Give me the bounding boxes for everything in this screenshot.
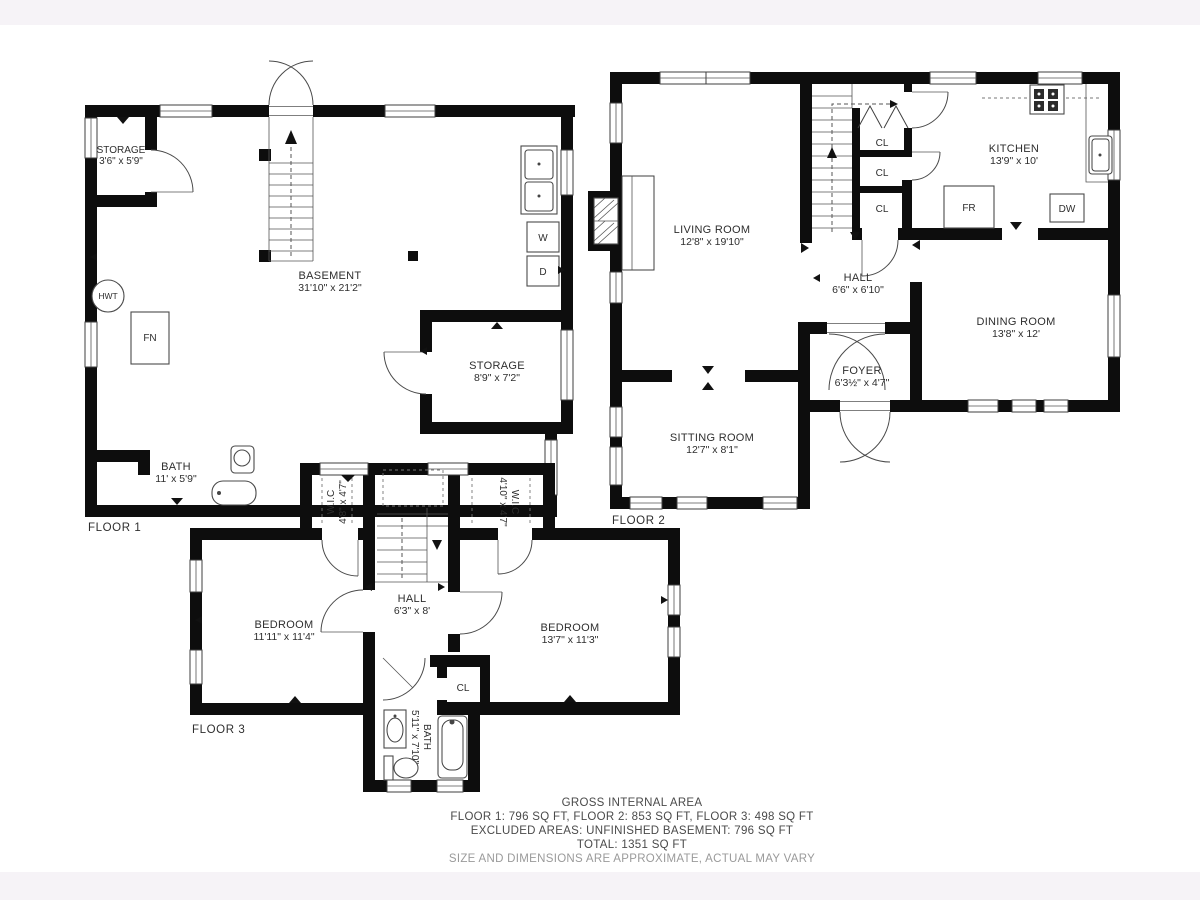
room-dims: 13'9" x 10' [990,155,1038,167]
room-dims: 13'8" x 12' [992,328,1040,340]
fixture-label: W [538,233,548,244]
room-label: DINING ROOM [976,316,1055,328]
summary-total: TOTAL: 1351 SQ FT [577,839,687,851]
floor1-stairs [269,117,313,261]
room-label: LIVING ROOM [674,224,751,236]
room-label: KITCHEN [989,143,1039,155]
fixture-label: FR [962,203,975,214]
floor1-fixtures [92,146,559,505]
room-label: BASEMENT [299,270,362,282]
room-label: BEDROOM [541,622,600,634]
room-label: W.I.C [326,490,337,514]
fireplace [594,176,654,270]
room-dims: 6'6" x 6'10" [832,284,884,296]
room-label: FOYER [842,365,881,377]
room-label: HALL [844,272,873,284]
room-label: BATH [161,461,191,473]
floor1-windows [85,105,573,495]
room-dims: 12'7" x 8'1" [686,444,738,456]
room-dims: 11'11" x 11'4" [253,631,314,643]
floor3-stairs [375,470,448,582]
summary-floors: FLOOR 1: 796 SQ FT, FLOOR 2: 853 SQ FT, … [450,811,813,823]
room-dims: 5'11" x 7'10" [409,710,420,765]
room-dims: 4'8" x 4'7" [338,480,349,524]
floor2-plan: LIVING ROOM 12'8" x 19'10" KITCHEN 13'9"… [588,72,1120,527]
room-dims: 6'3" x 8' [394,605,430,617]
room-label: STORAGE [97,145,146,156]
bottom-margin-band [0,872,1200,900]
room-label: BEDROOM [255,619,314,631]
closet-label: CL [876,204,889,215]
room-dims: 3'6" x 5'9" [99,156,143,167]
closet-label: CL [876,138,889,149]
closet-label: CL [457,683,470,694]
floor-label: FLOOR 3 [192,724,245,736]
room-dims: 13'7" x 11'3" [542,634,599,646]
floorplan-svg: STORAGE 3'6" x 5'9" BASEMENT 31'10" x 21… [0,0,1200,900]
summary-title: GROSS INTERNAL AREA [562,797,703,809]
summary-excluded: EXCLUDED AREAS: UNFINISHED BASEMENT: 796… [471,825,793,837]
room-label: SITTING ROOM [670,432,754,444]
room-dims: 8'9" x 7'2" [474,372,520,384]
room-label: W.I.C [509,490,520,514]
summary-disclaimer: SIZE AND DIMENSIONS ARE APPROXIMATE, ACT… [449,853,815,865]
floor-label: FLOOR 1 [88,522,141,534]
fixture-label: D [539,267,546,278]
room-label: STORAGE [469,360,525,372]
floor-label: FLOOR 2 [612,515,665,527]
room-dims: 31'10" x 21'2" [298,282,362,294]
hearth [622,176,654,270]
room-dims: 4'10" x 4'7" [497,477,508,527]
toilet-tank [384,756,393,780]
room-label: BATH [421,724,432,750]
fixture-label: HWT [98,291,117,301]
fixture-label: DW [1059,204,1076,215]
room-label: HALL [398,593,427,605]
fixture-label: FN [143,333,156,344]
closet-label: CL [876,168,889,179]
top-margin-band [0,0,1200,25]
floorplan-canvas: STORAGE 3'6" x 5'9" BASEMENT 31'10" x 21… [0,0,1200,900]
foyer-doors [827,322,890,462]
room-dims: 6'3½" x 4'7" [835,377,890,389]
area-summary: GROSS INTERNAL AREA FLOOR 1: 796 SQ FT, … [449,797,815,865]
room-dims: 12'8" x 19'10" [680,236,744,248]
room-dims: 11' x 5'9" [155,473,197,485]
